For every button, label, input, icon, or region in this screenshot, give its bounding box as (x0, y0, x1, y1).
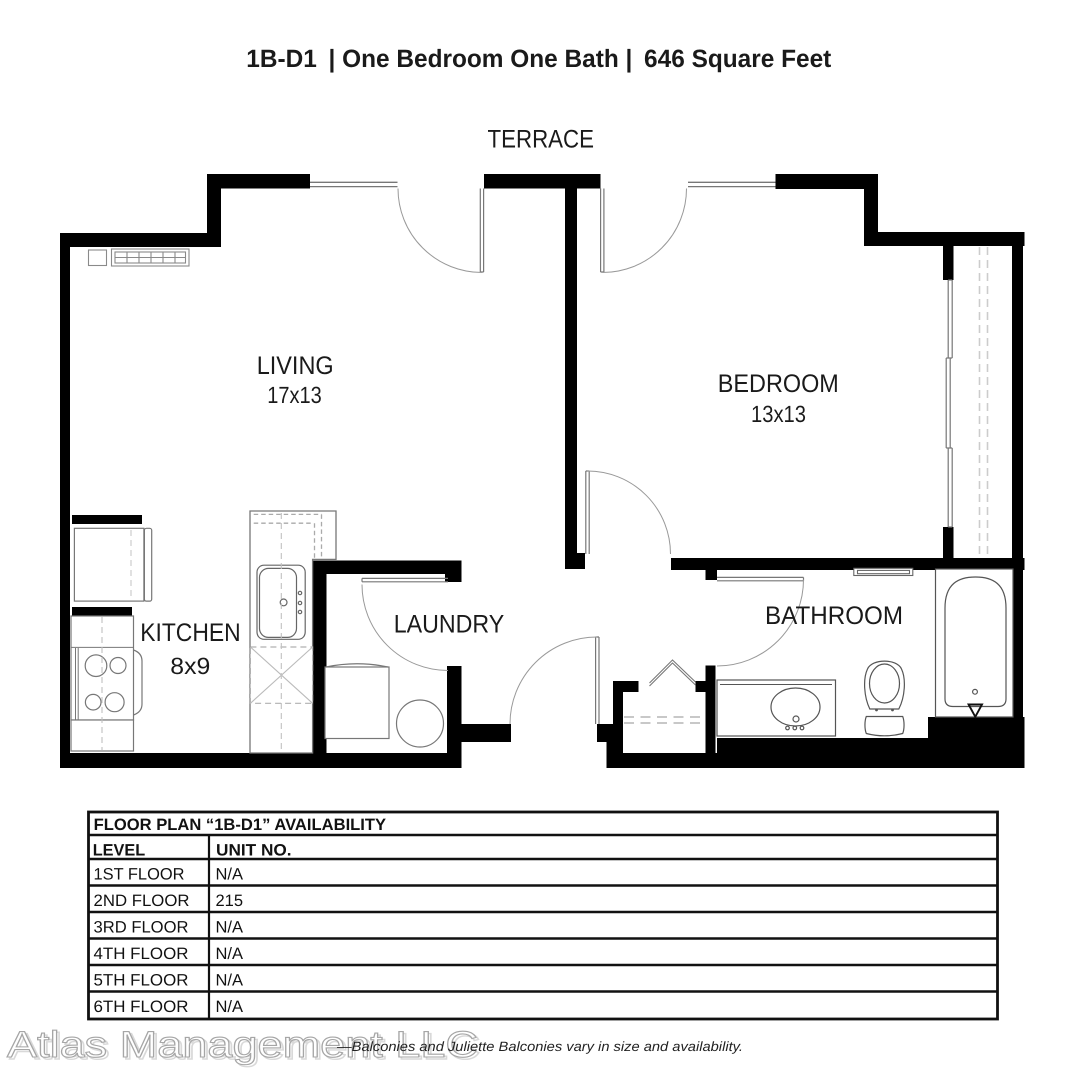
svg-text:LAUNDRY: LAUNDRY (394, 611, 505, 639)
svg-text:UNIT NO.: UNIT NO. (216, 842, 292, 860)
svg-text:215: 215 (216, 892, 244, 910)
svg-text:KITCHEN: KITCHEN (140, 619, 241, 647)
svg-text:—Balconies and Juliette Balcon: —Balconies and Juliette Balconies vary i… (336, 1039, 743, 1054)
svg-text:2ND FLOOR: 2ND FLOOR (94, 892, 190, 910)
svg-text:LEVEL: LEVEL (93, 842, 146, 860)
svg-text:N/A: N/A (216, 919, 244, 937)
svg-text:BEDROOM: BEDROOM (718, 370, 839, 398)
svg-text:3RD FLOOR: 3RD FLOOR (94, 919, 189, 937)
svg-text:4TH FLOOR: 4TH FLOOR (94, 945, 189, 963)
svg-text:5TH FLOOR: 5TH FLOOR (94, 972, 189, 990)
svg-text:17x13: 17x13 (267, 382, 322, 408)
svg-text:LIVING: LIVING (257, 352, 334, 380)
svg-text:N/A: N/A (216, 998, 244, 1016)
svg-text:FLOOR PLAN “1B-D1” AVAILABILIT: FLOOR PLAN “1B-D1” AVAILABILITY (94, 816, 387, 834)
svg-text:BATHROOM: BATHROOM (765, 602, 903, 630)
svg-text:TERRACE: TERRACE (488, 126, 595, 154)
svg-text:N/A: N/A (216, 866, 244, 884)
svg-text:1ST FLOOR: 1ST FLOOR (94, 866, 185, 884)
svg-text:N/A: N/A (216, 945, 244, 963)
svg-text:13x13: 13x13 (751, 401, 806, 427)
svg-text:6TH FLOOR: 6TH FLOOR (94, 998, 189, 1016)
svg-text:N/A: N/A (216, 972, 244, 990)
svg-text:8x9: 8x9 (170, 653, 210, 679)
svg-text:1B-D1 | One Bedroom One Bath: 1B-D1 | One Bedroom One Bath | 646 Squar… (246, 45, 832, 73)
